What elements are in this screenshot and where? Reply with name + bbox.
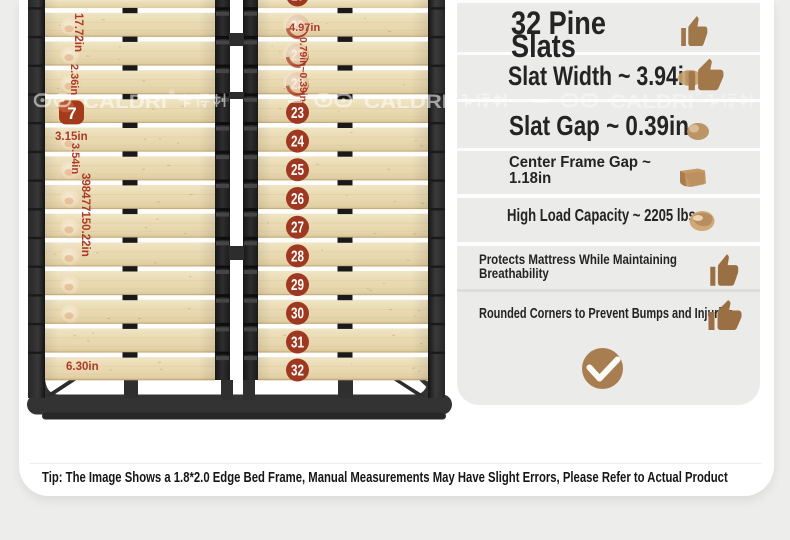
svg-text:6.30in: 6.30in xyxy=(66,361,99,373)
svg-text:7: 7 xyxy=(67,104,76,123)
svg-text:CALDRI: CALDRI xyxy=(83,91,167,113)
svg-text:CALDRI: CALDRI xyxy=(364,91,448,113)
svg-text:2.36in: 2.36in xyxy=(68,64,80,95)
svg-text:CALDRI: CALDRI xyxy=(610,91,694,113)
svg-text:4.97in: 4.97in xyxy=(289,22,320,34)
svg-text:31: 31 xyxy=(291,334,304,351)
svg-text:28: 28 xyxy=(291,248,304,265)
svg-text:30: 30 xyxy=(291,306,304,323)
svg-text:29: 29 xyxy=(291,277,304,294)
svg-text:3.54in: 3.54in xyxy=(69,143,81,174)
svg-text:26: 26 xyxy=(291,191,304,208)
svg-text:32: 32 xyxy=(291,362,304,379)
svg-text:23: 23 xyxy=(291,105,304,122)
svg-text:3.15in: 3.15in xyxy=(55,131,88,143)
svg-text:25: 25 xyxy=(291,162,304,179)
svg-text:27: 27 xyxy=(291,220,304,237)
svg-text:®: ® xyxy=(169,88,175,97)
svg-text:0.79in~0.39in: 0.79in~0.39in xyxy=(297,37,309,102)
svg-text:17.72in: 17.72in xyxy=(72,13,84,52)
svg-text:®: ® xyxy=(450,88,456,97)
svg-text:19: 19 xyxy=(291,0,304,4)
svg-text:398477150.22in: 398477150.22in xyxy=(79,173,91,257)
svg-text:24: 24 xyxy=(291,134,304,151)
